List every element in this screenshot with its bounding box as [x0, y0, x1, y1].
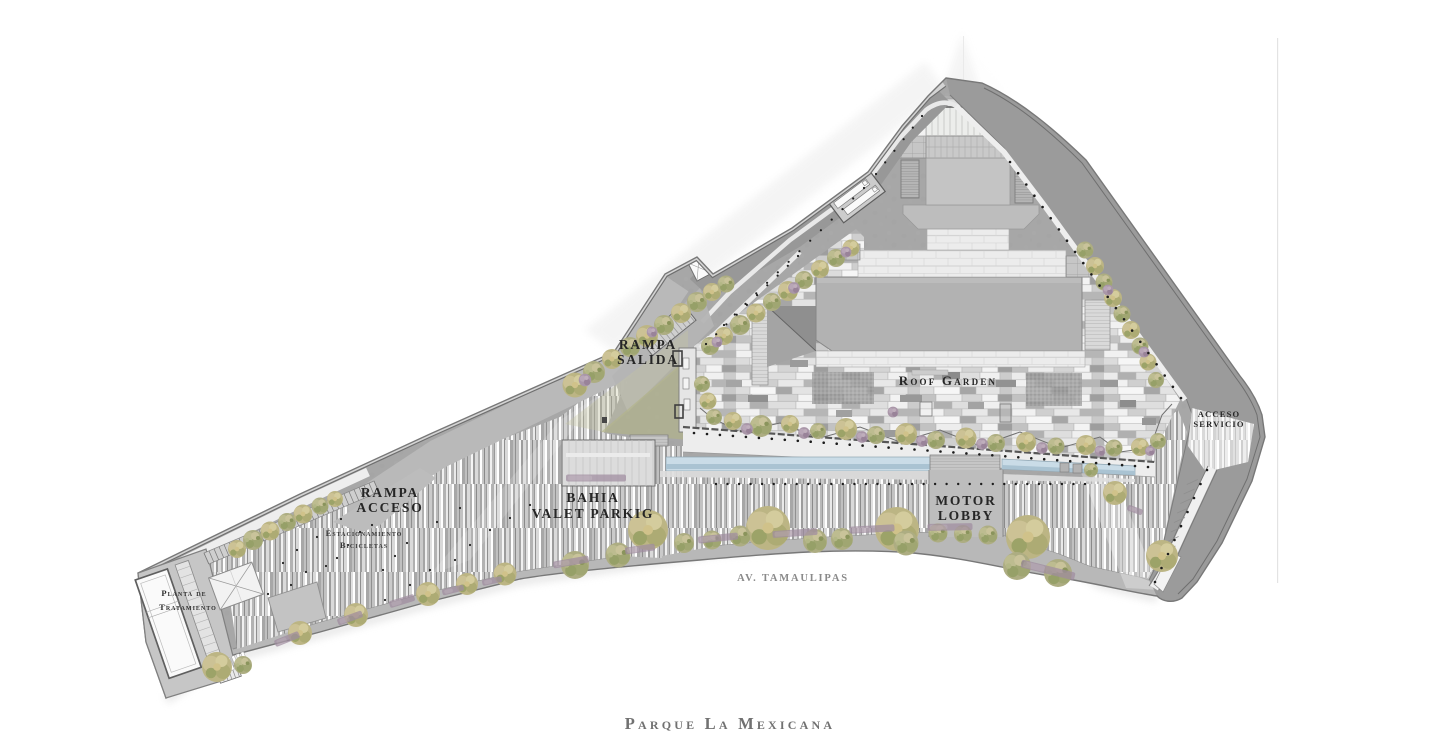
svg-text:RAMPA: RAMPA: [619, 337, 677, 352]
svg-text:Planta de: Planta de: [161, 588, 206, 598]
svg-text:SALIDA: SALIDA: [617, 352, 679, 367]
svg-text:Tratamiento: Tratamiento: [159, 602, 217, 612]
svg-text:ACCESO: ACCESO: [356, 500, 423, 515]
svg-text:Roof Garden: Roof Garden: [899, 373, 997, 388]
svg-text:ACCESO: ACCESO: [1198, 409, 1241, 419]
svg-text:SERVICIO: SERVICIO: [1193, 419, 1244, 429]
svg-text:MOTOR: MOTOR: [935, 493, 996, 508]
svg-text:VALET PARKIG: VALET PARKIG: [532, 506, 655, 521]
svg-text:AV. TAMAULIPAS: AV. TAMAULIPAS: [737, 573, 849, 584]
svg-text:Estacionamiento: Estacionamiento: [326, 528, 403, 538]
svg-text:Parque La Mexicana: Parque La Mexicana: [625, 714, 836, 733]
svg-text:LOBBY: LOBBY: [938, 508, 994, 523]
svg-text:RAMPA: RAMPA: [361, 485, 419, 500]
svg-text:BAHIA: BAHIA: [566, 490, 619, 505]
svg-text:Bicicletas: Bicicletas: [340, 540, 388, 550]
